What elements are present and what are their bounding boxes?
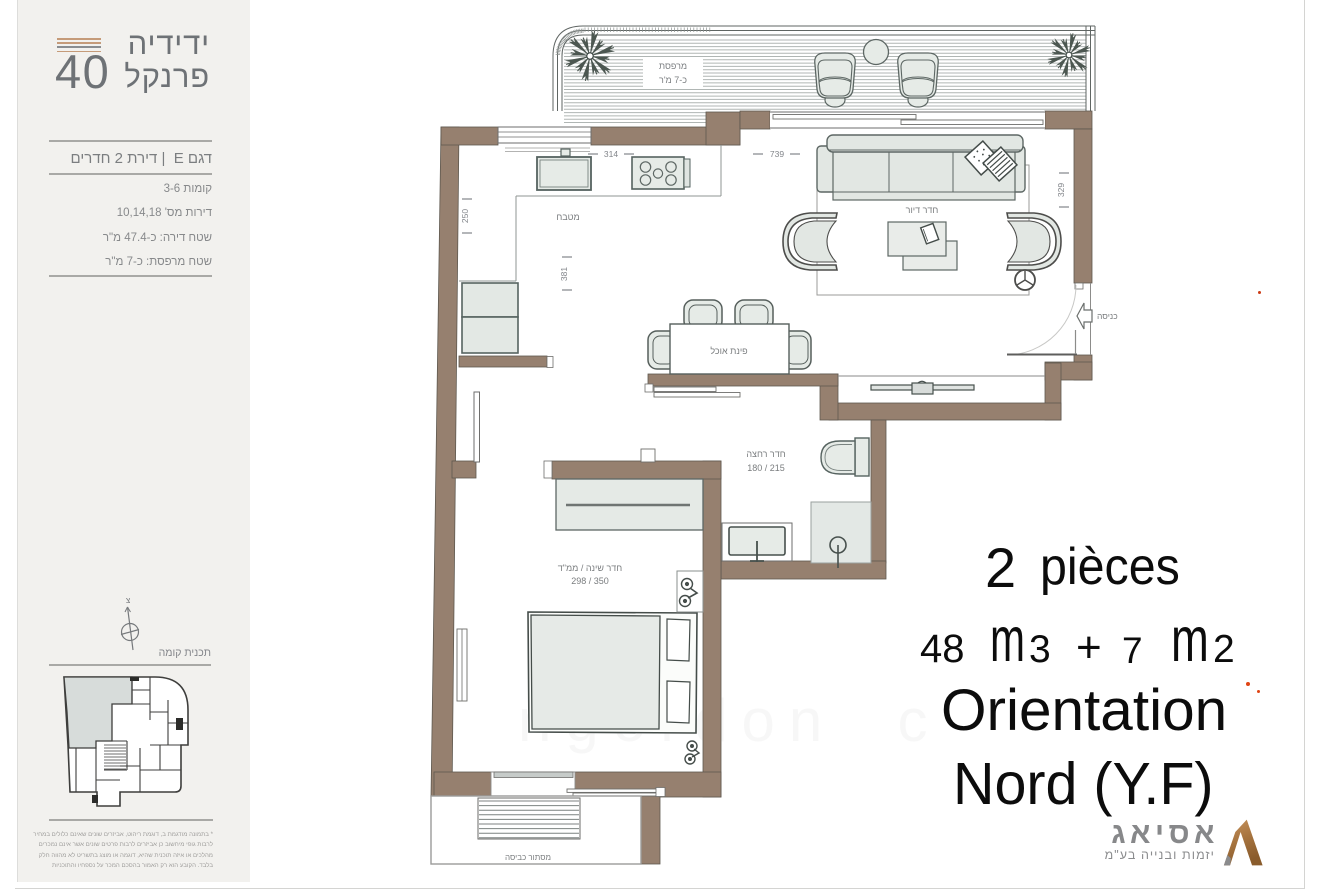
svg-text:כניסה: כניסה: [1097, 311, 1118, 321]
svg-text:חדר שינה / ממ"ד: חדר שינה / ממ"ד: [558, 563, 622, 573]
svg-text:מסתור כביסה: מסתור כביסה: [505, 853, 551, 862]
svg-text:250: 250: [460, 209, 470, 223]
svg-text:381: 381: [559, 267, 569, 281]
svg-text:מרפסת: מרפסת: [659, 61, 687, 71]
svg-text:314: 314: [604, 149, 618, 159]
svg-text:חדר דיור: חדר דיור: [906, 205, 939, 215]
svg-text:329: 329: [1056, 183, 1066, 197]
svg-text:צ: צ: [126, 596, 131, 605]
svg-text:מטבח: מטבח: [556, 212, 579, 222]
svg-text:739: 739: [770, 149, 784, 159]
svg-text:פינת אוכל: פינת אוכל: [710, 346, 747, 356]
svg-text:298 / 350: 298 / 350: [571, 576, 609, 586]
svg-text:180 / 215: 180 / 215: [747, 463, 785, 473]
svg-text:חדר רחצה: חדר רחצה: [746, 449, 785, 459]
svg-text:כ-7 מ'ר: כ-7 מ'ר: [659, 75, 687, 85]
